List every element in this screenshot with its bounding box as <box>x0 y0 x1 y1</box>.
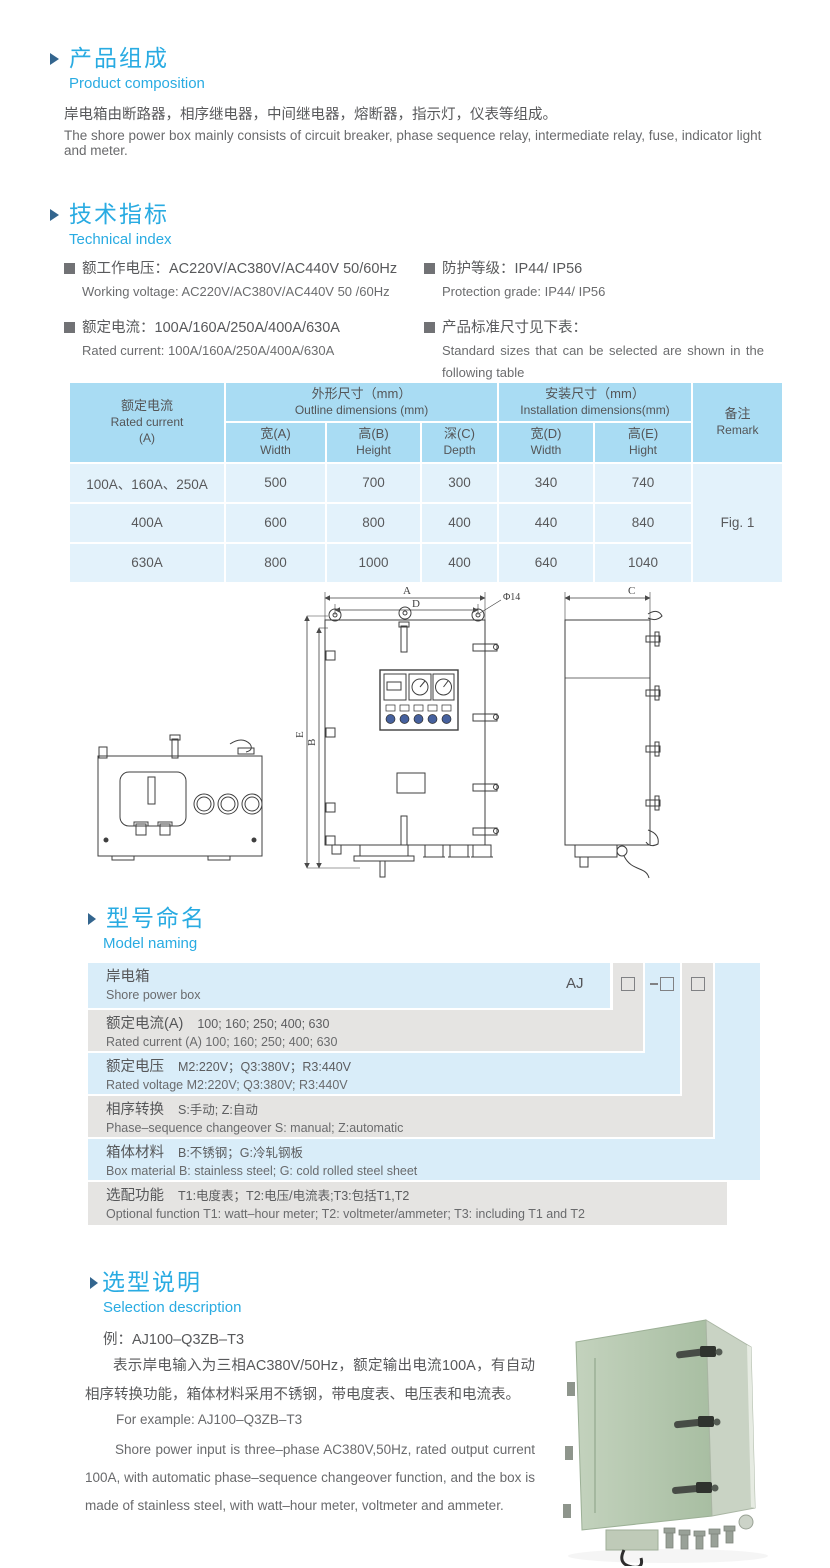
dim-label-a: A <box>403 585 411 597</box>
section-selection-description-header: 选型说明 Selection description <box>90 1270 241 1316</box>
header-installation-dimensions: 安装尺寸（mm） Installation dimensions(mm) <box>499 383 691 421</box>
model-row-rated-current: 额定电流(A)100; 160; 250; 400; 630 Rated cur… <box>88 1010 643 1051</box>
section-marker-icon <box>90 1277 98 1289</box>
table-row: 100A、160A、250A 500 700 300 340 740 Fig. … <box>70 464 782 502</box>
selection-example-en: For example: AJ100–Q3ZB–T3 <box>116 1412 302 1427</box>
spec-rated-current: 额定电流：100A/160A/250A/400A/630A Rated curr… <box>64 316 424 362</box>
section-title-zh: 技术指标 <box>69 202 169 227</box>
section-marker-icon <box>50 209 59 221</box>
front-view <box>307 592 501 877</box>
section-product-composition-header: 产品组成 Product composition <box>50 46 205 92</box>
spec-protection-grade: 防护等级：IP44/ IP56 Protection grade: IP44/ … <box>424 257 774 303</box>
dim-label-hole: Φ14 <box>503 592 520 603</box>
section-marker-icon <box>50 53 59 65</box>
spec-column-left: 额工作电压：AC220V/AC380V/AC440V 50/60Hz Worki… <box>64 257 424 375</box>
header-height-e: 高(E)Hight <box>595 423 691 461</box>
bottom-view <box>98 735 262 860</box>
model-prefix: AJ <box>566 975 584 992</box>
code-placeholder-3 <box>691 977 705 991</box>
model-row-phase-sequence: 相序转换S:手动; Z:自动 Phase–sequence changeover… <box>88 1096 713 1137</box>
dim-label-c: C <box>628 585 635 597</box>
header-outline-dimensions: 外形尺寸（mm） Outline dimensions (mm) <box>226 383 497 421</box>
product-photo <box>548 1300 818 1566</box>
code-placeholder-2 <box>660 977 674 991</box>
dim-label-d: D <box>412 598 420 610</box>
bullet-square-icon <box>64 322 75 333</box>
composition-text-zh: 岸电箱由断路器，相序继电器，中间继电器，熔断器，指示灯，仪表等组成。 <box>64 103 557 124</box>
technical-drawing: A D Φ14 E B C <box>60 578 770 893</box>
model-row-box-material: 箱体材料B:不锈钢；G:冷轧钢板 Box material B: stainle… <box>88 1139 760 1180</box>
model-row-product: 岸电箱 Shore power box <box>88 963 610 1008</box>
spec-working-voltage: 额工作电压：AC220V/AC380V/AC440V 50/60Hz Worki… <box>64 257 424 303</box>
section-title-zh: 产品组成 <box>69 46 169 71</box>
model-row-rated-voltage: 额定电压M2:220V；Q3:380V；R3:440V Rated voltag… <box>88 1053 680 1094</box>
catalog-page: 产品组成 Product composition 岸电箱由断路器，相序继电器，中… <box>0 0 830 1568</box>
spec-column-right: 防护等级：IP44/ IP56 Protection grade: IP44/ … <box>424 257 774 397</box>
header-height-b: 高(B)Height <box>327 423 420 461</box>
selection-paragraph-zh: 表示岸电输入为三相AC380V/50Hz，额定输出电流100A，有自动相序转换功… <box>85 1352 535 1410</box>
selection-example-zh: 例：AJ100–Q3ZB–T3 <box>103 1328 244 1349</box>
meter-panel <box>380 670 458 730</box>
table-row: 400A 600 800 400 440 840 <box>70 504 782 542</box>
section-title-en: Technical index <box>69 231 172 248</box>
dim-label-b: B <box>306 739 318 746</box>
dim-label-e: E <box>294 731 306 738</box>
header-rated-current: 额定电流 Rated current (A) <box>70 383 224 462</box>
bullet-square-icon <box>424 263 435 274</box>
section-model-naming-header: 型号命名 Model naming <box>88 906 206 952</box>
section-marker-icon <box>88 913 96 925</box>
code-placeholder-1 <box>621 977 635 991</box>
composition-text-en: The shore power box mainly consists of c… <box>64 128 784 158</box>
section-title-en: Model naming <box>103 935 206 952</box>
model-row-optional-function: 选配功能T1:电度表；T2:电压/电流表;T3:包括T1,T2 Optional… <box>88 1182 727 1225</box>
bullet-square-icon <box>64 263 75 274</box>
header-remark: 备注 Remark <box>693 383 782 462</box>
selection-paragraph-en: Shore power input is three–phase AC380V,… <box>85 1436 535 1520</box>
header-width-d: 宽(D)Width <box>499 423 593 461</box>
section-title-zh: 选型说明 <box>102 1270 202 1295</box>
spec-standard-sizes: 产品标准尺寸见下表： Standard sizes that can be se… <box>424 316 774 384</box>
code-dash <box>650 983 658 985</box>
section-title-zh: 型号命名 <box>106 906 206 931</box>
table-row: 630A 800 1000 400 640 1040 <box>70 544 782 582</box>
header-width-a: 宽(A)Width <box>226 423 325 461</box>
section-title-en: Selection description <box>103 1299 241 1316</box>
dimensions-table: 额定电流 Rated current (A) 外形尺寸（mm） Outline … <box>68 381 784 584</box>
section-technical-index-header: 技术指标 Technical index <box>50 202 172 248</box>
section-title-en: Product composition <box>69 75 205 92</box>
header-depth-c: 深(C)Depth <box>422 423 497 461</box>
bullet-square-icon <box>424 322 435 333</box>
side-view <box>565 592 662 878</box>
model-naming-diagram: 岸电箱 Shore power box 额定电流(A)100; 160; 250… <box>88 963 760 1225</box>
remark-cell: Fig. 1 <box>693 464 782 582</box>
